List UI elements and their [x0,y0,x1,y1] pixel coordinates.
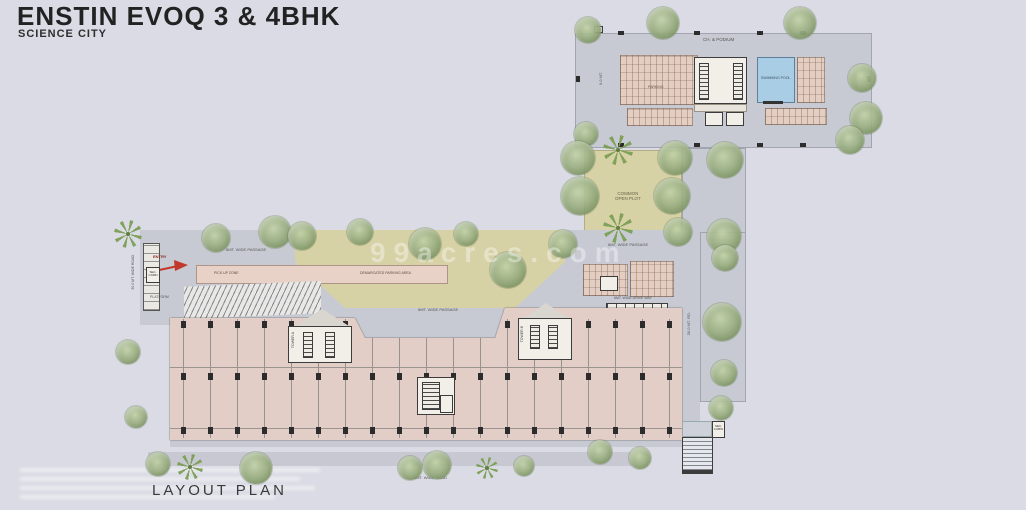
column-tick [316,373,321,380]
column-tick [505,427,510,434]
column-tick [640,427,645,434]
palm-icon [114,220,142,248]
tree-icon [647,7,679,39]
ramp-landing [682,421,712,437]
tree-icon [116,340,140,364]
column-tick [532,427,537,434]
tower-b-stair-2 [548,325,558,349]
column-tick [181,321,186,328]
tree-icon [709,396,733,420]
column-tick [208,373,213,380]
tree-icon [259,216,291,248]
clubhouse-parking-left-lower [627,108,693,126]
column-tick [451,321,456,328]
tree-icon [125,406,147,428]
clubhouse-parking-right [797,57,825,103]
column-tick [667,321,672,328]
tree-icon [423,451,451,479]
column-tick [397,373,402,380]
column-tick [343,373,348,380]
column-tick [262,321,267,328]
central-stair [422,382,440,410]
passage-label-top: 6MT. WIDE PASSAGE [226,248,266,252]
column-tick [451,427,456,434]
tree-icon [654,178,690,214]
column-tick [397,321,402,328]
tree-icon [784,7,816,39]
tower-b-label: TOWER B [521,326,525,342]
tree-icon [202,224,230,252]
clubhouse-dim-left: 9.0 MT. [599,72,603,85]
tree-icon [848,64,876,92]
clubhouse-room-1 [705,112,723,126]
deck-tick [694,143,700,147]
tree-icon [398,456,422,480]
column-tick [235,427,240,434]
clubhouse-stair-right [733,63,743,100]
column-tick [208,321,213,328]
tree-icon [561,177,599,215]
column-tick [181,427,186,434]
entry-label: ENTRY [153,255,166,259]
driveway-label: 6MT. WIDE DRIVE WAY [614,297,652,301]
tree-icon [703,303,741,341]
column-tick [181,373,186,380]
passage-label-mid: 6MT. WIDE PASSAGE [418,308,458,312]
common-plot-label: COMMON OPEN PLOT [615,192,641,202]
column-tick [586,373,591,380]
deck-tick [618,31,624,35]
column-tick [397,427,402,434]
tower-b-core [518,318,572,360]
tree-icon [836,126,864,154]
tree-icon [575,17,601,43]
tower-b-stair-1 [530,325,540,349]
deck-tick [757,143,763,147]
column-tick [316,427,321,434]
tree-icon [588,440,612,464]
column-tick [424,321,429,328]
column-tick [667,427,672,434]
tower-a-stair-1 [303,332,313,358]
palm-icon [603,135,633,165]
central-stair-room [440,395,453,413]
palm-icon [476,457,498,479]
parking-slab [170,305,682,440]
column-tick [478,321,483,328]
parking-left-label: PARKING [648,86,664,90]
road-right-label: 30.0 MT. RD. [687,312,691,335]
tree-icon [711,360,737,386]
clubhouse-apron [694,104,747,112]
column-tick [586,321,591,328]
column-tick [586,427,591,434]
security-cabin-exit-label: SEC. CABIN [713,425,724,432]
common-plot-line2: OPEN PLOT [615,197,641,202]
column-tick [235,321,240,328]
platform-label: PLATFORM [150,296,169,300]
clubhouse-room-2 [726,112,744,126]
page-title: ENSTIN EVOQ 3 & 4BHK [17,2,340,31]
column-tick [262,427,267,434]
deck-tick [757,31,763,35]
column-tick [289,373,294,380]
tree-icon [146,452,170,476]
tree-icon [240,452,272,484]
column-tick [640,373,645,380]
tree-icon [288,222,316,250]
column-tick [370,373,375,380]
tree-icon [629,447,651,469]
layout-plan-label: LAYOUT PLAN [152,483,287,500]
tree-icon [514,456,534,476]
deck-tick [800,143,806,147]
pickup-zone-label: PICK UP ZONE [214,272,239,276]
tree-icon [707,142,743,178]
column-tick [667,373,672,380]
column-tick [235,373,240,380]
palm-icon [177,454,203,480]
clubhouse-parking-left [620,55,698,105]
tree-icon [712,245,738,271]
column-tick [505,373,510,380]
tree-icon [664,218,692,246]
column-tick [478,373,483,380]
column-tick [613,321,618,328]
deck-tick [576,76,580,82]
column-tick [370,321,375,328]
pool-step [763,101,783,104]
column-tick [505,321,510,328]
tree-icon [658,141,692,175]
tree-icon [561,141,595,175]
column-tick [262,373,267,380]
column-tick [208,427,213,434]
clubhouse-parking-right-lower [765,108,827,125]
page-subtitle: SCIENCE CITY [18,28,107,40]
clubhouse-stair-left [699,63,709,100]
parking-grid-ne-2 [630,261,674,297]
ramp-end-bar [682,471,713,474]
building-slab-wrap [170,305,682,440]
tower-a-core [288,326,352,363]
column-tick [370,427,375,434]
column-tick [289,427,294,434]
road-left-label: 30.0 MT. WIDE ROAD [132,255,136,290]
watermark: 99acres.com [370,238,628,269]
column-tick [613,427,618,434]
ne-room [600,276,618,291]
column-tick [343,427,348,434]
demarcated-parking-label: DEMARCATED PARKING AREA [360,272,411,276]
column-tick [559,427,564,434]
column-tick [640,321,645,328]
tower-a-label: TOWER A [292,332,296,348]
exit-ramp [682,437,713,471]
watermark-ghost [20,468,320,472]
swimming-pool-label: SWIMMING POOL [761,77,790,81]
deck-tick [694,31,700,35]
column-tick [478,427,483,434]
layout-plan-page: ENSTIN EVOQ 3 & 4BHK SCIENCE CITY CH. & … [0,0,1026,510]
column-tick [559,373,564,380]
column-tick [613,373,618,380]
security-cabin-entry-label: SEC. CABIN [147,271,159,278]
podium-label: CH. & PODIUM [703,38,734,43]
column-tick [424,427,429,434]
tower-a-stair-2 [325,332,335,358]
column-tick [532,373,537,380]
